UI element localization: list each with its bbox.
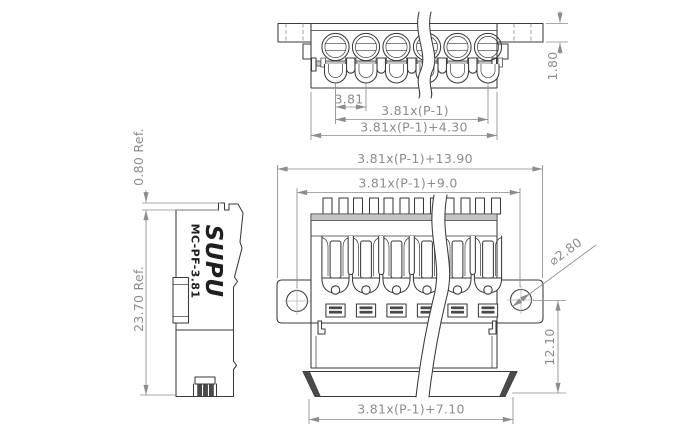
dim-flange-width: 3.81x(P-1)+13.90 [357, 151, 473, 166]
product-marking: SUPU MC-PF-3.81 [189, 224, 227, 299]
dim-overall-width-top: 3.81x(P-1)+4.30 [360, 120, 468, 135]
engineering-drawing: SUPU MC-PF-3.81 [0, 0, 680, 440]
front-view [277, 195, 543, 397]
top-view [278, 12, 543, 98]
dim-hole-spacing: 3.81x(P-1)+9.0 [358, 176, 457, 191]
side-view: SUPU MC-PF-3.81 [173, 203, 243, 397]
model-number: MC-PF-3.81 [189, 224, 202, 299]
top-mount-wing-left [278, 24, 311, 43]
dim-span: 3.81x(P-1) [381, 103, 449, 118]
dim-hole-diameter: ⌀2.80 [546, 234, 585, 268]
dim-height-ref: 23.70 Ref. [131, 266, 146, 332]
bottom-skirt [303, 372, 517, 397]
brand-logo: SUPU [200, 225, 226, 298]
dim-latch-ref: 0.80 Ref. [131, 128, 146, 186]
top-mount-wing-right [497, 24, 543, 43]
dim-pitch: 3.81 [334, 92, 363, 107]
dim-base-width: 3.81x(P-1)+7.10 [357, 402, 465, 417]
drawing-canvas: SUPU MC-PF-3.81 [0, 0, 680, 440]
dim-tab-height: 1.80 [545, 51, 560, 80]
dim-lower-height: 12.10 [542, 328, 557, 365]
